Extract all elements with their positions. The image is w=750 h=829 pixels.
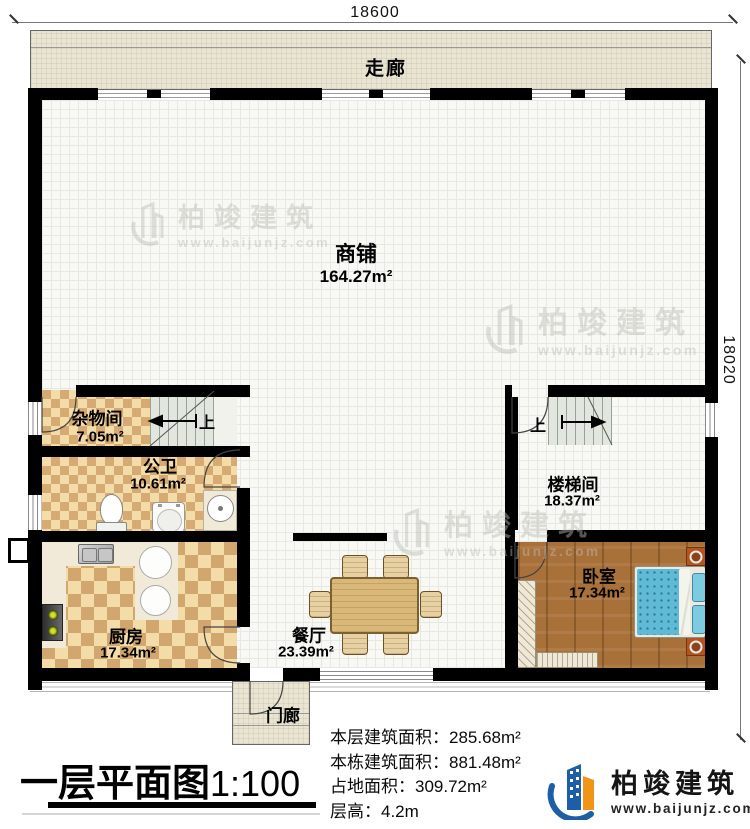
- shop-area: 164.27m²: [320, 267, 393, 287]
- door-stop: [571, 90, 585, 98]
- kitchen-sink: [78, 544, 114, 564]
- dining-chair: [420, 591, 442, 618]
- info-total-area: 本栋建筑面积：881.48m²: [330, 751, 521, 776]
- stairs-up-label-right: 上: [530, 412, 546, 436]
- nightstand: [686, 547, 706, 566]
- drawing-title-text: 一层平面图: [20, 763, 210, 805]
- dining-chair: [342, 555, 368, 579]
- door-stop: [147, 90, 161, 98]
- corridor-label: 走廊: [365, 54, 407, 81]
- pillow: [692, 605, 706, 634]
- dining-chair: [309, 591, 331, 618]
- corridor-inner-line: [31, 47, 711, 48]
- bedroom-area: 17.34m²: [569, 585, 625, 602]
- dining-area: 23.39m²: [278, 644, 334, 661]
- dresser: [536, 652, 598, 668]
- wall: [28, 88, 42, 690]
- wall: [505, 385, 512, 397]
- building-info-block: 本层建筑面积：285.68m² 本栋建筑面积：881.48m² 占地面积：309…: [330, 726, 521, 824]
- nightstand: [686, 637, 706, 656]
- drawing-title: 一层平面图1:100: [20, 752, 300, 807]
- wall: [505, 397, 518, 530]
- brand-logo: 柏竣建筑 www.baijunjz.com: [545, 758, 750, 820]
- info-land-area: 占地面积：309.72m²: [330, 775, 521, 800]
- stove: [42, 604, 63, 641]
- wall: [28, 668, 250, 681]
- bed: [634, 566, 706, 638]
- bathroom-area: 10.61m²: [130, 476, 186, 493]
- kitchen-table-round: [140, 585, 171, 616]
- wall: [28, 531, 250, 542]
- dining-chair: [383, 555, 409, 579]
- wall: [237, 446, 250, 452]
- partial-wall-beam: [293, 533, 387, 541]
- info-floor-height: 层高：4.2m: [330, 800, 521, 825]
- wall: [237, 663, 250, 671]
- wall: [505, 530, 515, 542]
- title-underline-light: [22, 813, 320, 815]
- exterior-steps: [30, 681, 710, 692]
- wall: [76, 385, 250, 397]
- bed-sheet: [679, 569, 690, 635]
- wall: [547, 530, 713, 542]
- info-floor-area: 本层建筑面积：285.68m²: [330, 726, 521, 751]
- bathroom-label: 公卫: [143, 453, 177, 478]
- dining-table: [330, 577, 419, 634]
- dimension-tick: [736, 54, 746, 64]
- wall: [505, 542, 518, 668]
- window: [320, 669, 433, 680]
- bathroom-sink: [207, 495, 234, 522]
- top-dimension-label: 18600: [350, 4, 400, 22]
- stairs-up-label-left: 上: [199, 409, 215, 433]
- wall: [210, 88, 322, 100]
- wall: [237, 488, 250, 627]
- door-stop: [369, 90, 383, 98]
- window: [28, 402, 42, 435]
- top-dimension-line: [12, 22, 733, 23]
- drawing-scale: 1:100: [210, 763, 300, 804]
- bed-mattress: [637, 569, 681, 635]
- right-dimension-label: 18020: [719, 335, 737, 385]
- wall: [283, 668, 320, 681]
- title-underline: [48, 802, 316, 808]
- kitchen-area: 17.34m²: [100, 645, 156, 662]
- stairs-right: [548, 397, 612, 445]
- toilet: [96, 494, 126, 536]
- pillow: [692, 573, 706, 602]
- wall: [548, 385, 717, 397]
- wall: [433, 668, 718, 681]
- stairs-left-landing: [214, 390, 237, 446]
- storage-label: 杂物间: [72, 405, 123, 430]
- wall: [430, 88, 532, 100]
- shop-label: 商铺: [335, 238, 377, 268]
- window: [705, 403, 718, 437]
- chimney: [8, 538, 30, 563]
- dining-chair: [383, 631, 409, 655]
- porch-label: 门廊: [266, 702, 300, 727]
- floor-plan-canvas: 18600 18020 走廊: [0, 0, 750, 829]
- brand-name: 柏竣建筑: [611, 762, 750, 801]
- brand-url: www.baijunjz.com: [611, 801, 750, 816]
- brand-logo-icon: [545, 758, 603, 820]
- window: [28, 495, 42, 530]
- storage-area: 7.05m²: [76, 429, 124, 446]
- dining-chair: [342, 631, 368, 655]
- kitchen-table-round: [139, 546, 172, 579]
- dimension-tick: [736, 733, 746, 743]
- right-dimension-line: [740, 61, 741, 740]
- stairwell-area: 18.37m²: [544, 493, 600, 510]
- wardrobe: [517, 580, 536, 668]
